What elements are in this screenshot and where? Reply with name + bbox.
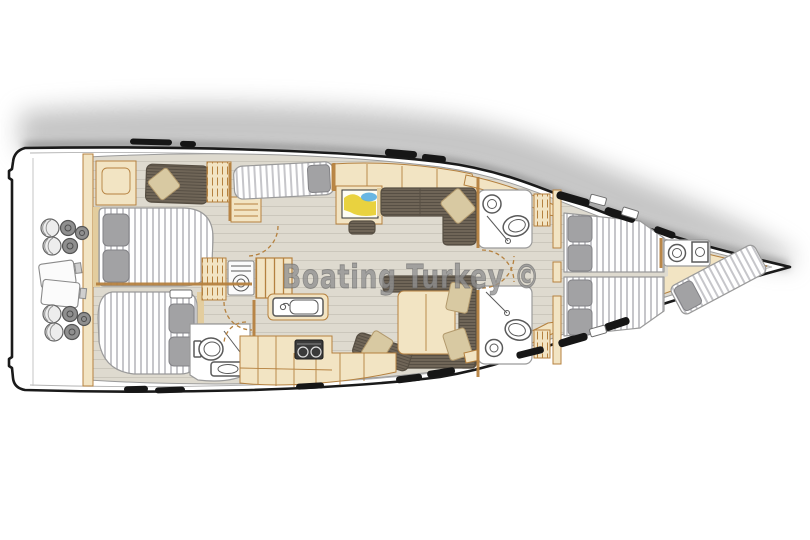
fwd-bulkhead-lower	[553, 296, 561, 364]
locker	[202, 258, 226, 300]
locker	[534, 194, 550, 226]
washbasin-counter	[692, 242, 708, 262]
pillow	[103, 214, 129, 246]
nav-seat	[349, 221, 375, 234]
toilet	[199, 338, 223, 360]
pillow	[568, 245, 592, 271]
washing-machine	[228, 261, 254, 295]
pillow	[103, 250, 129, 282]
watermark-text: Boating Turkey ©	[282, 257, 540, 296]
pillow	[568, 309, 592, 335]
yacht-floorplan-page: Boating Turkey ©	[0, 0, 810, 540]
transom-bulkhead	[83, 154, 93, 386]
toilet	[669, 245, 686, 262]
salon-berth	[233, 161, 335, 199]
pillow	[568, 216, 592, 242]
pillow	[307, 165, 330, 193]
bow-head	[664, 240, 710, 266]
stove	[295, 340, 323, 359]
nautical-chart	[342, 190, 378, 218]
washbasin	[486, 340, 503, 357]
shelf-unit	[231, 197, 261, 222]
pillow	[568, 280, 592, 306]
aft-cabin-port	[98, 290, 204, 374]
yacht-layout-diagram: Boating Turkey ©	[0, 0, 810, 540]
bedside-shelf	[170, 290, 192, 298]
fwd-bulkhead-post	[553, 262, 561, 282]
wardrobe-locker	[207, 162, 231, 202]
washbasin	[483, 195, 501, 213]
